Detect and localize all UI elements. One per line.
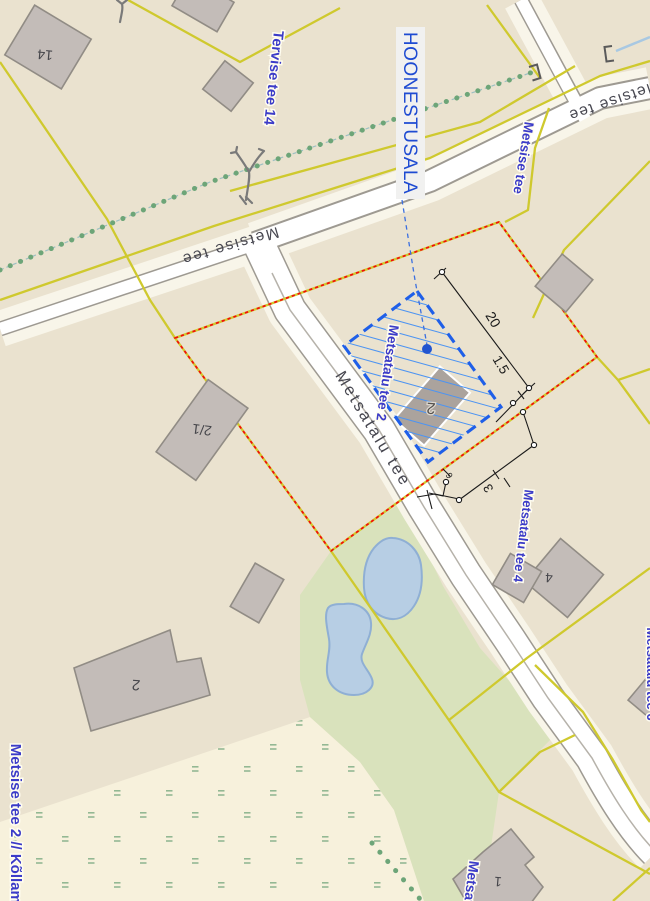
svg-text:HOONESTUSALA: HOONESTUSALA bbox=[399, 32, 420, 194]
svg-text:2: 2 bbox=[131, 676, 141, 694]
svg-text:1: 1 bbox=[494, 874, 503, 890]
svg-text:14: 14 bbox=[36, 46, 53, 63]
svg-text:2/1: 2/1 bbox=[191, 421, 212, 439]
svg-text:4: 4 bbox=[544, 570, 553, 585]
svg-text:Metsise tee 2 // Kõllame: Metsise tee 2 // Kõllame bbox=[7, 744, 24, 901]
svg-text:Metsatalu tee 6: Metsatalu tee 6 bbox=[644, 627, 650, 720]
svg-text:2: 2 bbox=[426, 399, 436, 417]
